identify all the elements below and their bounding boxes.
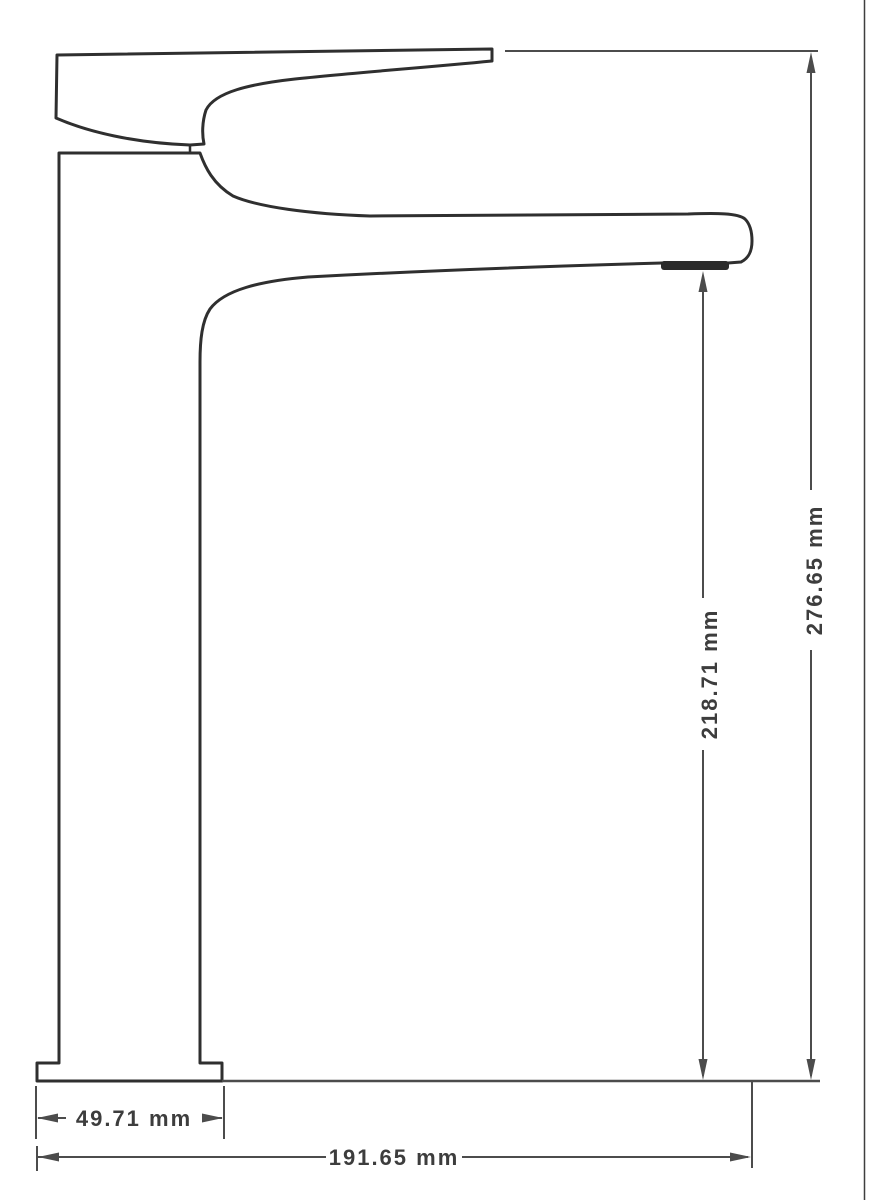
arrow-down-icon: [807, 1059, 816, 1080]
arrow-down-icon: [699, 1059, 708, 1080]
arrow-left-icon: [38, 1153, 59, 1162]
aerator: [661, 261, 729, 270]
arrow-left-icon: [37, 1114, 58, 1123]
faucet-lever-handle: [56, 49, 492, 145]
dim-total-height-label: 276.65 mm: [802, 505, 827, 636]
arrow-right-icon: [202, 1114, 223, 1123]
faucet-body-and-spout: [37, 153, 752, 1081]
arrow-up-icon: [807, 52, 816, 73]
arrow-up-icon: [699, 271, 708, 292]
dim-total-length-label: 191.65 mm: [329, 1145, 460, 1170]
arrow-right-icon: [730, 1153, 751, 1162]
dim-base-width-label: 49.71 mm: [76, 1106, 192, 1131]
dim-spout-height-label: 218.71 mm: [697, 609, 722, 740]
technical-drawing: 276.65 mm 218.71 mm 49.71 mm 191.65 mm: [0, 0, 871, 1200]
drawing-canvas: 276.65 mm 218.71 mm 49.71 mm 191.65 mm: [0, 0, 871, 1200]
faucet-outline-group: [37, 49, 752, 1081]
